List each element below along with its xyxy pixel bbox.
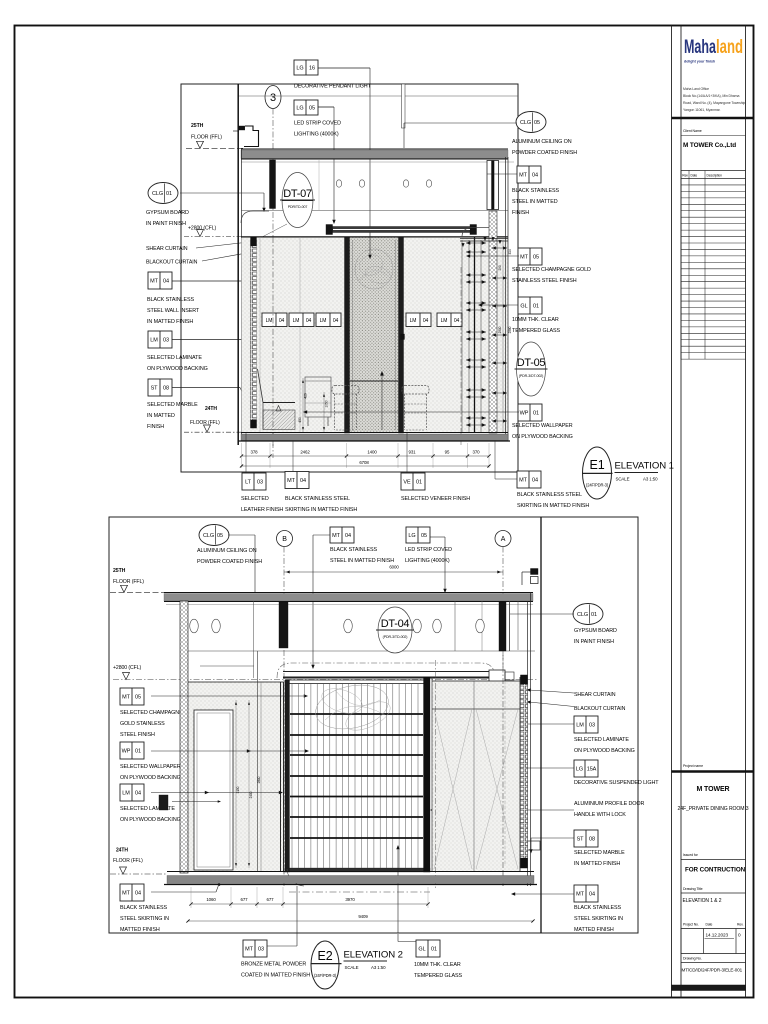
- svg-text:03: 03: [258, 947, 264, 953]
- svg-text:M TOWER Co.,Ltd: M TOWER Co.,Ltd: [683, 142, 736, 149]
- svg-text:ELEVATION 2: ELEVATION 2: [344, 950, 403, 961]
- svg-text:6708: 6708: [359, 460, 369, 465]
- svg-text:ON PLYWOOD BACKING: ON PLYWOOD BACKING: [120, 817, 181, 823]
- svg-text:ELEVATION 1 & 2: ELEVATION 1 & 2: [683, 898, 722, 904]
- svg-text:1400: 1400: [367, 450, 377, 455]
- svg-text:03: 03: [589, 723, 595, 729]
- svg-text:STEEL WALL INSERT: STEEL WALL INSERT: [147, 308, 200, 314]
- svg-text:ON PLYWOOD BACKING: ON PLYWOOD BACKING: [147, 366, 208, 372]
- svg-text:FOR CONTRUCTION: FOR CONTRUCTION: [685, 867, 746, 874]
- svg-text:25TH: 25TH: [191, 123, 204, 129]
- svg-text:290: 290: [498, 265, 502, 270]
- svg-text:DT-07: DT-07: [283, 188, 312, 200]
- svg-text:MT: MT: [245, 947, 253, 953]
- svg-text:STEEL IN MATTED FINISH: STEEL IN MATTED FINISH: [330, 558, 394, 564]
- svg-text:IN MATTED: IN MATTED: [147, 413, 175, 419]
- svg-text:LEATHER FINISH: LEATHER FINISH: [241, 507, 283, 513]
- svg-text:LM: LM: [576, 723, 584, 729]
- svg-text:04: 04: [300, 478, 306, 484]
- svg-text:BLACKOUT CURTAIN: BLACKOUT CURTAIN: [146, 260, 198, 266]
- svg-text:01: 01: [533, 304, 539, 310]
- svg-text:3970: 3970: [345, 897, 355, 902]
- svg-text:Project name: Project name: [683, 764, 703, 768]
- svg-text:MT: MT: [520, 255, 528, 261]
- svg-text:04: 04: [135, 891, 141, 897]
- svg-text:24TH: 24TH: [116, 848, 128, 854]
- svg-text:SELECTED LAMINATE: SELECTED LAMINATE: [147, 355, 202, 361]
- svg-text:MT: MT: [287, 478, 295, 484]
- svg-text:01: 01: [533, 411, 539, 417]
- svg-text:GYPSUM BOARD: GYPSUM BOARD: [146, 210, 189, 216]
- svg-text:LG: LG: [296, 66, 303, 72]
- svg-text:05: 05: [309, 106, 315, 112]
- svg-text:SELECTED WALLPAPER: SELECTED WALLPAPER: [120, 764, 181, 770]
- svg-text:LG: LG: [576, 767, 583, 773]
- svg-text:TEMPERED GLASS: TEMPERED GLASS: [414, 973, 463, 979]
- svg-text:ON PLYWOOD BACKING: ON PLYWOOD BACKING: [120, 775, 181, 781]
- svg-text:05: 05: [217, 533, 223, 539]
- svg-text:MATTED FINISH: MATTED FINISH: [574, 927, 614, 933]
- svg-text:ST: ST: [577, 837, 585, 843]
- svg-text:2500: 2500: [498, 326, 502, 333]
- svg-text:1060: 1060: [206, 897, 216, 902]
- svg-text:04: 04: [423, 318, 429, 324]
- svg-text:FLOOR (FFL): FLOOR (FFL): [113, 579, 144, 585]
- svg-text:95: 95: [445, 450, 450, 455]
- svg-text:FLOOR (FFL): FLOOR (FFL): [191, 135, 222, 141]
- svg-text:677: 677: [240, 897, 248, 902]
- svg-text:BLACK STAINLESS: BLACK STAINLESS: [147, 297, 194, 303]
- svg-text:10MM THK. CLEAR: 10MM THK. CLEAR: [512, 317, 559, 323]
- svg-text:CLG: CLG: [577, 612, 588, 618]
- svg-text:Client Name: Client Name: [683, 129, 702, 133]
- svg-text:STEEL FINISH: STEEL FINISH: [120, 732, 155, 738]
- svg-text:MT: MT: [332, 533, 340, 539]
- svg-text:BLACK STAINLESS: BLACK STAINLESS: [120, 905, 167, 911]
- svg-text:MT: MT: [122, 695, 130, 701]
- svg-text:(PDR-3/DT-002): (PDR-3/DT-002): [519, 374, 544, 378]
- svg-text:SELECTED MARBLE: SELECTED MARBLE: [147, 402, 198, 408]
- svg-text:04: 04: [589, 892, 595, 898]
- svg-text:SKIRTING IN MATTED FINISH: SKIRTING IN MATTED FINISH: [517, 503, 589, 509]
- svg-text:Maha Land Office: Maha Land Office: [683, 87, 709, 91]
- svg-text:1050: 1050: [325, 400, 329, 407]
- svg-text:14.12.2023: 14.12.2023: [706, 933, 729, 938]
- svg-text:(PDR-3/TD-002): (PDR-3/TD-002): [383, 635, 408, 639]
- svg-text:A3 1:50: A3 1:50: [371, 965, 386, 970]
- svg-text:BLACK STAINLESS: BLACK STAINLESS: [512, 188, 559, 194]
- svg-text:(24F/PDR-3): (24F/PDR-3): [314, 973, 337, 978]
- svg-text:ON PLYWOOD BACKING: ON PLYWOOD BACKING: [512, 434, 573, 440]
- svg-text:9409: 9409: [358, 914, 368, 919]
- svg-text:Block No.(14/A A/1+3/KA), Min: Block No.(14/A A/1+3/KA), Min Dhama: [683, 94, 739, 98]
- svg-text:FLOOR (FFL): FLOOR (FFL): [113, 858, 143, 864]
- svg-text:Issued for: Issued for: [683, 853, 699, 857]
- svg-text:STAINLESS STEEL FINISH: STAINLESS STEEL FINISH: [512, 278, 577, 284]
- svg-text:04: 04: [454, 318, 460, 324]
- svg-text:SELECTED VENEER FINISH: SELECTED VENEER FINISH: [401, 496, 470, 502]
- svg-text:15A: 15A: [587, 767, 597, 773]
- svg-text:01: 01: [166, 191, 172, 197]
- svg-text:DECORATIVE SUSPENDED LIGHT: DECORATIVE SUSPENDED LIGHT: [574, 780, 659, 786]
- svg-text:414: 414: [508, 249, 512, 254]
- svg-text:BLACK STAINLESS STEEL: BLACK STAINLESS STEEL: [285, 496, 350, 502]
- svg-text:2462: 2462: [300, 450, 310, 455]
- svg-text:E1: E1: [589, 458, 604, 472]
- svg-text:08: 08: [163, 386, 169, 392]
- svg-text:Yangon 11061, Myanmar.: Yangon 11061, Myanmar.: [683, 108, 721, 112]
- svg-text:ELEVATION 1: ELEVATION 1: [615, 461, 674, 472]
- svg-text:01: 01: [416, 480, 422, 486]
- svg-text:PDR/TD-007: PDR/TD-007: [288, 205, 308, 209]
- svg-text:IN PAINT FINISH: IN PAINT FINISH: [574, 639, 614, 645]
- svg-text:LM: LM: [441, 318, 448, 324]
- svg-text:2800: 2800: [257, 776, 261, 783]
- svg-text:6000: 6000: [389, 565, 399, 570]
- svg-text:LM: LM: [266, 318, 273, 324]
- svg-text:SCALE: SCALE: [616, 477, 630, 482]
- svg-text:BLACK STAINLESS STEEL: BLACK STAINLESS STEEL: [517, 492, 582, 498]
- svg-text:03: 03: [163, 338, 169, 344]
- svg-text:FINISH: FINISH: [512, 210, 529, 216]
- svg-text:GOLD STAINLESS: GOLD STAINLESS: [120, 721, 165, 727]
- svg-text:04: 04: [532, 173, 538, 179]
- svg-text:LT: LT: [245, 480, 252, 486]
- svg-text:LM: LM: [122, 791, 130, 797]
- svg-text:COATED IN MATTED FINISH: COATED IN MATTED FINISH: [241, 973, 310, 979]
- svg-text:(24F/PDR-3): (24F/PDR-3): [586, 483, 609, 488]
- svg-text:SELECTED MARBLE: SELECTED MARBLE: [574, 850, 625, 856]
- svg-text:01: 01: [135, 749, 141, 755]
- svg-text:DT-05: DT-05: [517, 357, 546, 369]
- svg-text:ST: ST: [151, 386, 159, 392]
- svg-text:Date: Date: [691, 173, 698, 177]
- svg-text:GYPSUM BOARD: GYPSUM BOARD: [574, 628, 617, 634]
- svg-text:01: 01: [591, 612, 597, 618]
- svg-text:+2800 (CFL): +2800 (CFL): [188, 226, 217, 232]
- svg-text:Date: Date: [706, 923, 713, 927]
- svg-text:POWDER COATED FINISH: POWDER COATED FINISH: [512, 150, 577, 156]
- svg-text:Project No.: Project No.: [683, 923, 699, 927]
- svg-text:Drawing Title: Drawing Title: [683, 887, 703, 891]
- svg-text:POWDER COATED FINISH: POWDER COATED FINISH: [197, 559, 262, 565]
- svg-text:MT: MT: [122, 891, 130, 897]
- svg-text:BLACK STAINLESS: BLACK STAINLESS: [330, 547, 377, 553]
- svg-text:Rev.: Rev.: [737, 923, 743, 927]
- svg-text:24TH: 24TH: [205, 406, 217, 412]
- svg-text:ALUMINUM CEILING ON: ALUMINUM CEILING ON: [512, 139, 572, 145]
- svg-text:05: 05: [534, 120, 540, 126]
- svg-text:M TOWER: M TOWER: [696, 786, 729, 793]
- svg-text:B: B: [282, 536, 287, 543]
- svg-text:WP: WP: [520, 411, 529, 417]
- svg-text:MT: MT: [150, 279, 158, 285]
- svg-text:04: 04: [345, 533, 351, 539]
- svg-text:SELECTED CHAMPAGNE: SELECTED CHAMPAGNE: [120, 710, 183, 716]
- svg-text:GL: GL: [520, 304, 527, 310]
- svg-text:Road, Ward No. (4), Mayangone: Road, Ward No. (4), Mayangone Township,: [683, 101, 746, 105]
- svg-text:Description: Description: [707, 173, 723, 177]
- svg-text:10MM THK. CLEAR: 10MM THK. CLEAR: [414, 962, 461, 968]
- svg-text:BRONZE METAL POWDER: BRONZE METAL POWDER: [241, 962, 306, 968]
- svg-text:378: 378: [250, 450, 258, 455]
- svg-text:CLG: CLG: [203, 533, 214, 539]
- svg-text:04: 04: [333, 318, 339, 324]
- svg-text:MT: MT: [576, 892, 584, 898]
- svg-text:04: 04: [532, 478, 538, 484]
- svg-text:WP: WP: [122, 749, 131, 755]
- svg-text:931: 931: [408, 450, 416, 455]
- svg-text:SKIRTING IN MATTED FINISH: SKIRTING IN MATTED FINISH: [285, 507, 357, 513]
- svg-text:+2800 (CFL): +2800 (CFL): [113, 665, 142, 671]
- svg-text:05: 05: [135, 695, 141, 701]
- svg-text:A3 1:50: A3 1:50: [643, 477, 658, 482]
- svg-text:05: 05: [533, 255, 539, 261]
- svg-text:ALUMINIUM PROFILE DOOR: ALUMINIUM PROFILE DOOR: [574, 801, 644, 807]
- svg-text:IN PAINT FINISH: IN PAINT FINISH: [146, 221, 186, 227]
- svg-text:FINISH: FINISH: [147, 424, 164, 430]
- svg-text:05: 05: [421, 533, 427, 539]
- svg-text:MATTED FINISH: MATTED FINISH: [120, 927, 160, 933]
- svg-text:04: 04: [279, 318, 285, 324]
- svg-text:SCALE: SCALE: [345, 965, 359, 970]
- svg-text:MT: MT: [519, 173, 527, 179]
- svg-text:LIGHTING (4000K): LIGHTING (4000K): [405, 558, 450, 564]
- svg-text:2150: 2150: [236, 786, 240, 793]
- svg-text:IN MATTED FINISH: IN MATTED FINISH: [147, 319, 193, 325]
- svg-text:3: 3: [270, 92, 276, 104]
- svg-text:01: 01: [431, 947, 437, 953]
- svg-text:LM: LM: [410, 318, 417, 324]
- svg-text:LM: LM: [150, 338, 158, 344]
- svg-text:04: 04: [306, 318, 312, 324]
- svg-text:E2: E2: [317, 949, 332, 963]
- svg-text:CLG: CLG: [152, 191, 163, 197]
- svg-text:LM: LM: [293, 318, 300, 324]
- svg-text:A: A: [501, 536, 506, 543]
- svg-text:GL: GL: [418, 947, 425, 953]
- svg-text:LIGHTING (4000K): LIGHTING (4000K): [294, 132, 339, 138]
- svg-text:delight your finish: delight your finish: [684, 60, 715, 64]
- svg-text:STEEL IN MATTED: STEEL IN MATTED: [512, 199, 558, 205]
- svg-text:2400: 2400: [249, 791, 253, 798]
- svg-text:MT/CD/ID/24F/PDR-3/ELE-001: MT/CD/ID/24F/PDR-3/ELE-001: [682, 968, 743, 973]
- svg-text:ALUMINUM CEILING ON: ALUMINUM CEILING ON: [197, 548, 257, 554]
- svg-text:SHEAR CURTAIN: SHEAR CURTAIN: [574, 692, 616, 698]
- svg-text:429: 429: [304, 393, 308, 399]
- svg-text:SELECTED LAMINATE: SELECTED LAMINATE: [574, 737, 629, 743]
- svg-text:24F_PRIVATE DINING ROOM 3: 24F_PRIVATE DINING ROOM 3: [678, 806, 749, 812]
- svg-text:ON PLYWOOD BACKING: ON PLYWOOD BACKING: [574, 748, 635, 754]
- svg-text:25TH: 25TH: [113, 568, 126, 574]
- svg-text:450: 450: [298, 417, 302, 423]
- svg-text:HANDLE WITH LOCK: HANDLE WITH LOCK: [574, 812, 626, 818]
- svg-text:MT: MT: [519, 478, 527, 484]
- svg-text:677: 677: [266, 897, 274, 902]
- svg-text:SHEAR CURTAIN: SHEAR CURTAIN: [146, 246, 188, 252]
- svg-text:BLACK STAINLESS: BLACK STAINLESS: [574, 905, 621, 911]
- svg-text:LM: LM: [320, 318, 327, 324]
- svg-text:DT-04: DT-04: [381, 618, 410, 630]
- svg-text:03: 03: [257, 480, 263, 486]
- svg-text:BLACKOUT CURTAIN: BLACKOUT CURTAIN: [574, 706, 626, 712]
- svg-text:16: 16: [309, 66, 315, 72]
- svg-text:Drawing No.: Drawing No.: [683, 957, 702, 961]
- svg-text:Rev: Rev: [682, 173, 688, 177]
- svg-text:SELECTED WALLPAPER: SELECTED WALLPAPER: [512, 423, 573, 429]
- svg-text:370: 370: [472, 450, 480, 455]
- svg-text:SELECTED: SELECTED: [241, 496, 269, 502]
- svg-text:LG: LG: [296, 106, 303, 112]
- svg-text:VE: VE: [403, 480, 411, 486]
- svg-text:SELECTED CHAMPAGNE GOLD: SELECTED CHAMPAGNE GOLD: [512, 267, 591, 273]
- svg-text:IN MATTED FINISH: IN MATTED FINISH: [574, 861, 620, 867]
- svg-text:08: 08: [589, 837, 595, 843]
- svg-text:land: land: [716, 37, 743, 58]
- svg-text:CLG: CLG: [520, 120, 531, 126]
- svg-text:LG: LG: [408, 533, 415, 539]
- svg-text:STEEL SKIRTING IN: STEEL SKIRTING IN: [574, 916, 623, 922]
- svg-text:STEEL SKIRTING IN: STEEL SKIRTING IN: [120, 916, 169, 922]
- svg-text:TEMPERED GLASS: TEMPERED GLASS: [512, 328, 561, 334]
- svg-text:04: 04: [163, 279, 169, 285]
- svg-text:DECORATIVE PENDANT LIGHT: DECORATIVE PENDANT LIGHT: [294, 84, 372, 90]
- svg-text:04: 04: [135, 791, 141, 797]
- svg-text:Maha: Maha: [684, 37, 716, 58]
